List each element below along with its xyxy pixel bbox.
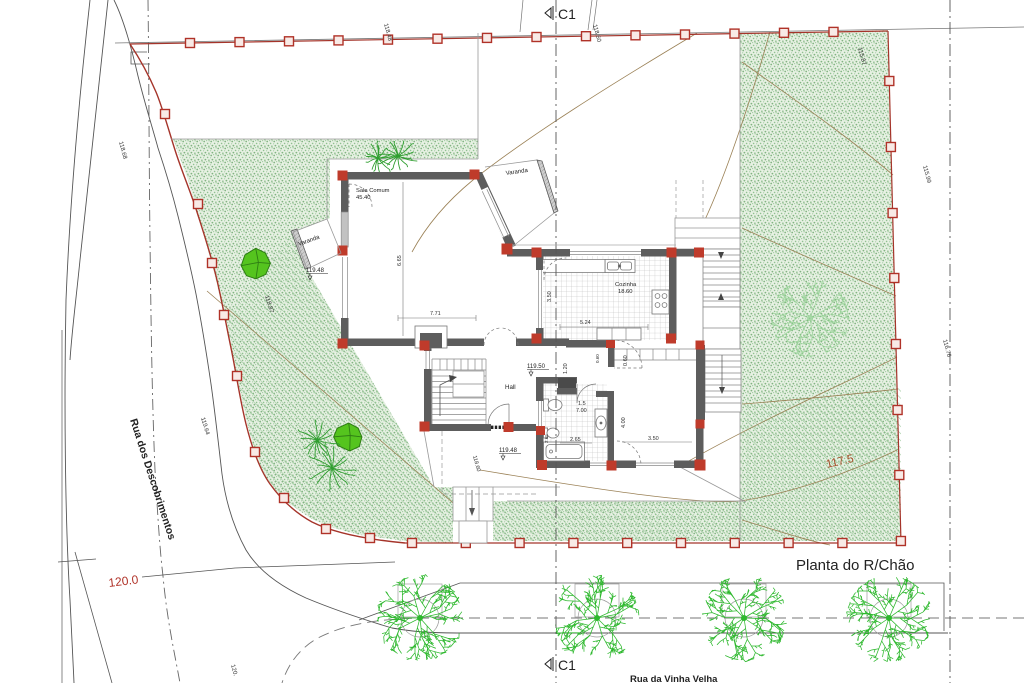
svg-text:Cozinha: Cozinha bbox=[615, 282, 637, 288]
svg-text:119.48: 119.48 bbox=[306, 268, 325, 274]
svg-text:119.50: 119.50 bbox=[527, 364, 546, 370]
svg-text:Rua da Vinha Velha: Rua da Vinha Velha bbox=[630, 674, 718, 683]
svg-text:119.48: 119.48 bbox=[499, 448, 518, 454]
svg-text:6.65: 6.65 bbox=[397, 255, 403, 266]
svg-text:7.00: 7.00 bbox=[576, 408, 587, 414]
svg-text:2.65: 2.65 bbox=[570, 437, 581, 443]
svg-text:7.71: 7.71 bbox=[430, 311, 441, 317]
svg-text:45.40: 45.40 bbox=[356, 195, 371, 201]
svg-text:2.65: 2.65 bbox=[544, 434, 549, 443]
svg-text:0.60: 0.60 bbox=[623, 355, 629, 366]
svg-text:5.24: 5.24 bbox=[580, 320, 591, 326]
svg-text:C1: C1 bbox=[558, 6, 576, 22]
svg-text:Planta do R/Chão: Planta do R/Chão bbox=[796, 557, 914, 574]
svg-text:Sala Comum: Sala Comum bbox=[356, 188, 390, 194]
svg-text:C1: C1 bbox=[558, 657, 576, 673]
svg-text:4.00: 4.00 bbox=[621, 417, 627, 428]
svg-text:3.50: 3.50 bbox=[547, 291, 553, 302]
svg-text:1.20: 1.20 bbox=[563, 363, 569, 374]
svg-text:1.5: 1.5 bbox=[578, 401, 586, 407]
svg-text:3.50: 3.50 bbox=[648, 436, 659, 442]
svg-text:0.60: 0.60 bbox=[595, 354, 600, 363]
svg-text:18.60: 18.60 bbox=[618, 289, 633, 295]
svg-text:Hall: Hall bbox=[505, 384, 516, 391]
